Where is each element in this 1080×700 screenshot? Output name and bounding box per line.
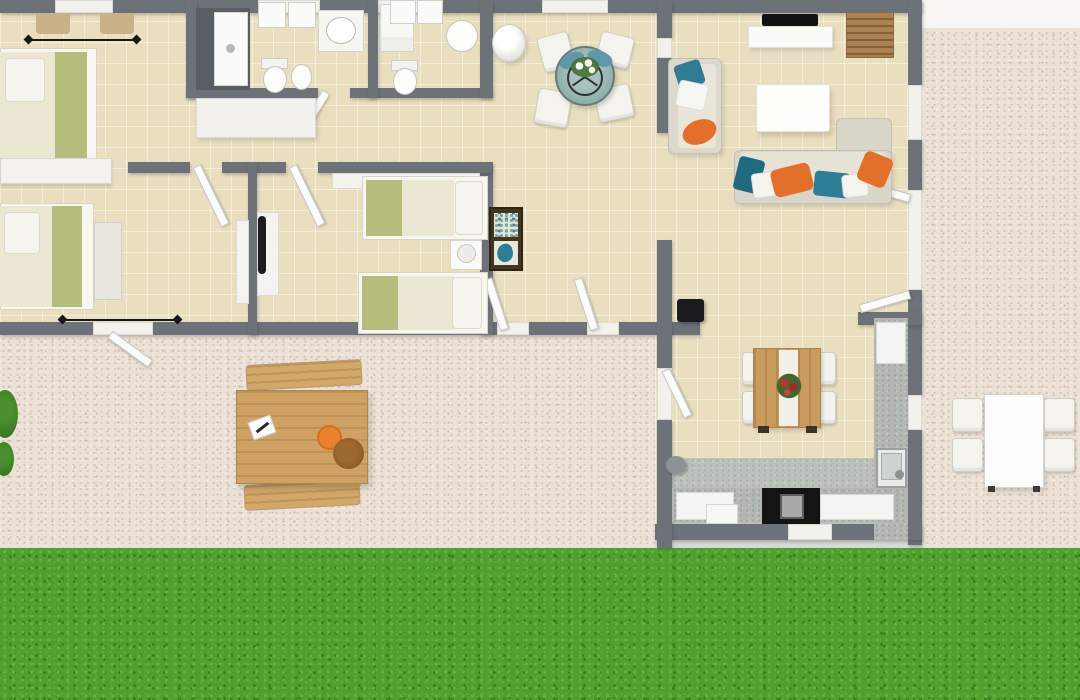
tv-console bbox=[748, 26, 833, 48]
wall-right-c bbox=[908, 290, 922, 395]
patio-door-opening-right bbox=[908, 190, 922, 290]
basin-pair-2b bbox=[417, 0, 443, 24]
tv bbox=[762, 14, 818, 26]
sink-faucet bbox=[895, 470, 904, 479]
basin-pair-1a bbox=[258, 2, 286, 28]
stove-door bbox=[780, 494, 804, 519]
bed2-pillow bbox=[4, 212, 40, 254]
curtain-2 bbox=[100, 13, 134, 34]
wall-sconce bbox=[666, 456, 686, 474]
nightstand-bed2 bbox=[94, 222, 122, 300]
wall-entry-a bbox=[657, 0, 672, 38]
wall-corridor-a bbox=[128, 162, 190, 173]
white-strip-top-right bbox=[922, 0, 1080, 28]
window-top-1 bbox=[55, 0, 113, 13]
vanity1-basin bbox=[326, 17, 356, 44]
washbasin2 bbox=[446, 20, 478, 52]
window-bottom bbox=[788, 524, 832, 540]
basin-pair-2a bbox=[390, 0, 416, 24]
wall-closet bbox=[248, 162, 257, 335]
toilet2-bowl bbox=[393, 68, 417, 95]
basin-pair-1b bbox=[288, 2, 316, 28]
window-right-1 bbox=[908, 85, 922, 140]
patio-chair-1 bbox=[952, 398, 983, 432]
table-foot-1 bbox=[758, 426, 769, 433]
table-foot-2 bbox=[806, 426, 817, 433]
wall-right-a bbox=[908, 0, 922, 85]
wall-bedroom3-top bbox=[318, 162, 492, 173]
media-shelf bbox=[846, 12, 894, 58]
wall-divider-upper bbox=[480, 0, 493, 98]
fridge bbox=[876, 322, 906, 364]
bed1-blanket bbox=[55, 52, 87, 158]
wall-dining-left-a bbox=[657, 240, 672, 368]
wall-rug-top bbox=[494, 213, 518, 237]
bed2-blanket bbox=[52, 206, 82, 307]
floor-plan bbox=[0, 0, 1080, 700]
bed1-pillow bbox=[5, 58, 45, 102]
bed4-pillow bbox=[452, 277, 482, 329]
bed4-blanket bbox=[362, 276, 398, 330]
ironing-board bbox=[258, 216, 266, 274]
bed3-pillow bbox=[455, 181, 483, 235]
toilet1-bowl bbox=[263, 66, 287, 93]
wall-top bbox=[0, 0, 922, 13]
dresser-left bbox=[0, 158, 112, 184]
wall-bath2-left bbox=[368, 0, 378, 98]
kitchen-cabinet-2 bbox=[706, 504, 738, 524]
wall-right-b bbox=[908, 140, 922, 190]
patio-table-foot-2 bbox=[1033, 486, 1040, 492]
window-right-2 bbox=[908, 395, 922, 430]
patio-door-opening-left bbox=[93, 322, 153, 335]
dimension-line-1 bbox=[28, 39, 138, 41]
patio-chair-3 bbox=[1044, 398, 1075, 432]
hall-wardrobe bbox=[196, 98, 316, 138]
window-entry bbox=[657, 38, 672, 58]
nightstand-lamp bbox=[457, 244, 476, 263]
shower-drain bbox=[226, 44, 235, 53]
bed4-sheet bbox=[398, 276, 454, 330]
curtain-1 bbox=[36, 13, 70, 34]
flower-bouquet bbox=[571, 57, 599, 77]
bed3-sheet bbox=[402, 180, 454, 236]
lawn bbox=[0, 548, 1080, 700]
black-sideboard bbox=[677, 299, 704, 322]
brown-bowl bbox=[333, 438, 364, 469]
closet-wardrobe-left bbox=[236, 220, 249, 304]
wall-dining-left-b bbox=[657, 420, 672, 548]
patio-chair-2 bbox=[952, 438, 983, 472]
laundry-basket bbox=[492, 24, 526, 62]
dining-flowers bbox=[775, 373, 802, 400]
bed3-blanket bbox=[366, 180, 402, 236]
window-top-4 bbox=[542, 0, 608, 13]
bidet-bowl bbox=[291, 64, 312, 90]
patio-table-foot-1 bbox=[988, 486, 995, 492]
kitchen-cabinet-3 bbox=[820, 494, 894, 520]
patio-chair-4 bbox=[1044, 438, 1075, 472]
coffee-table bbox=[756, 84, 830, 132]
patio-table bbox=[984, 394, 1044, 488]
dimension-line-2 bbox=[62, 319, 178, 321]
